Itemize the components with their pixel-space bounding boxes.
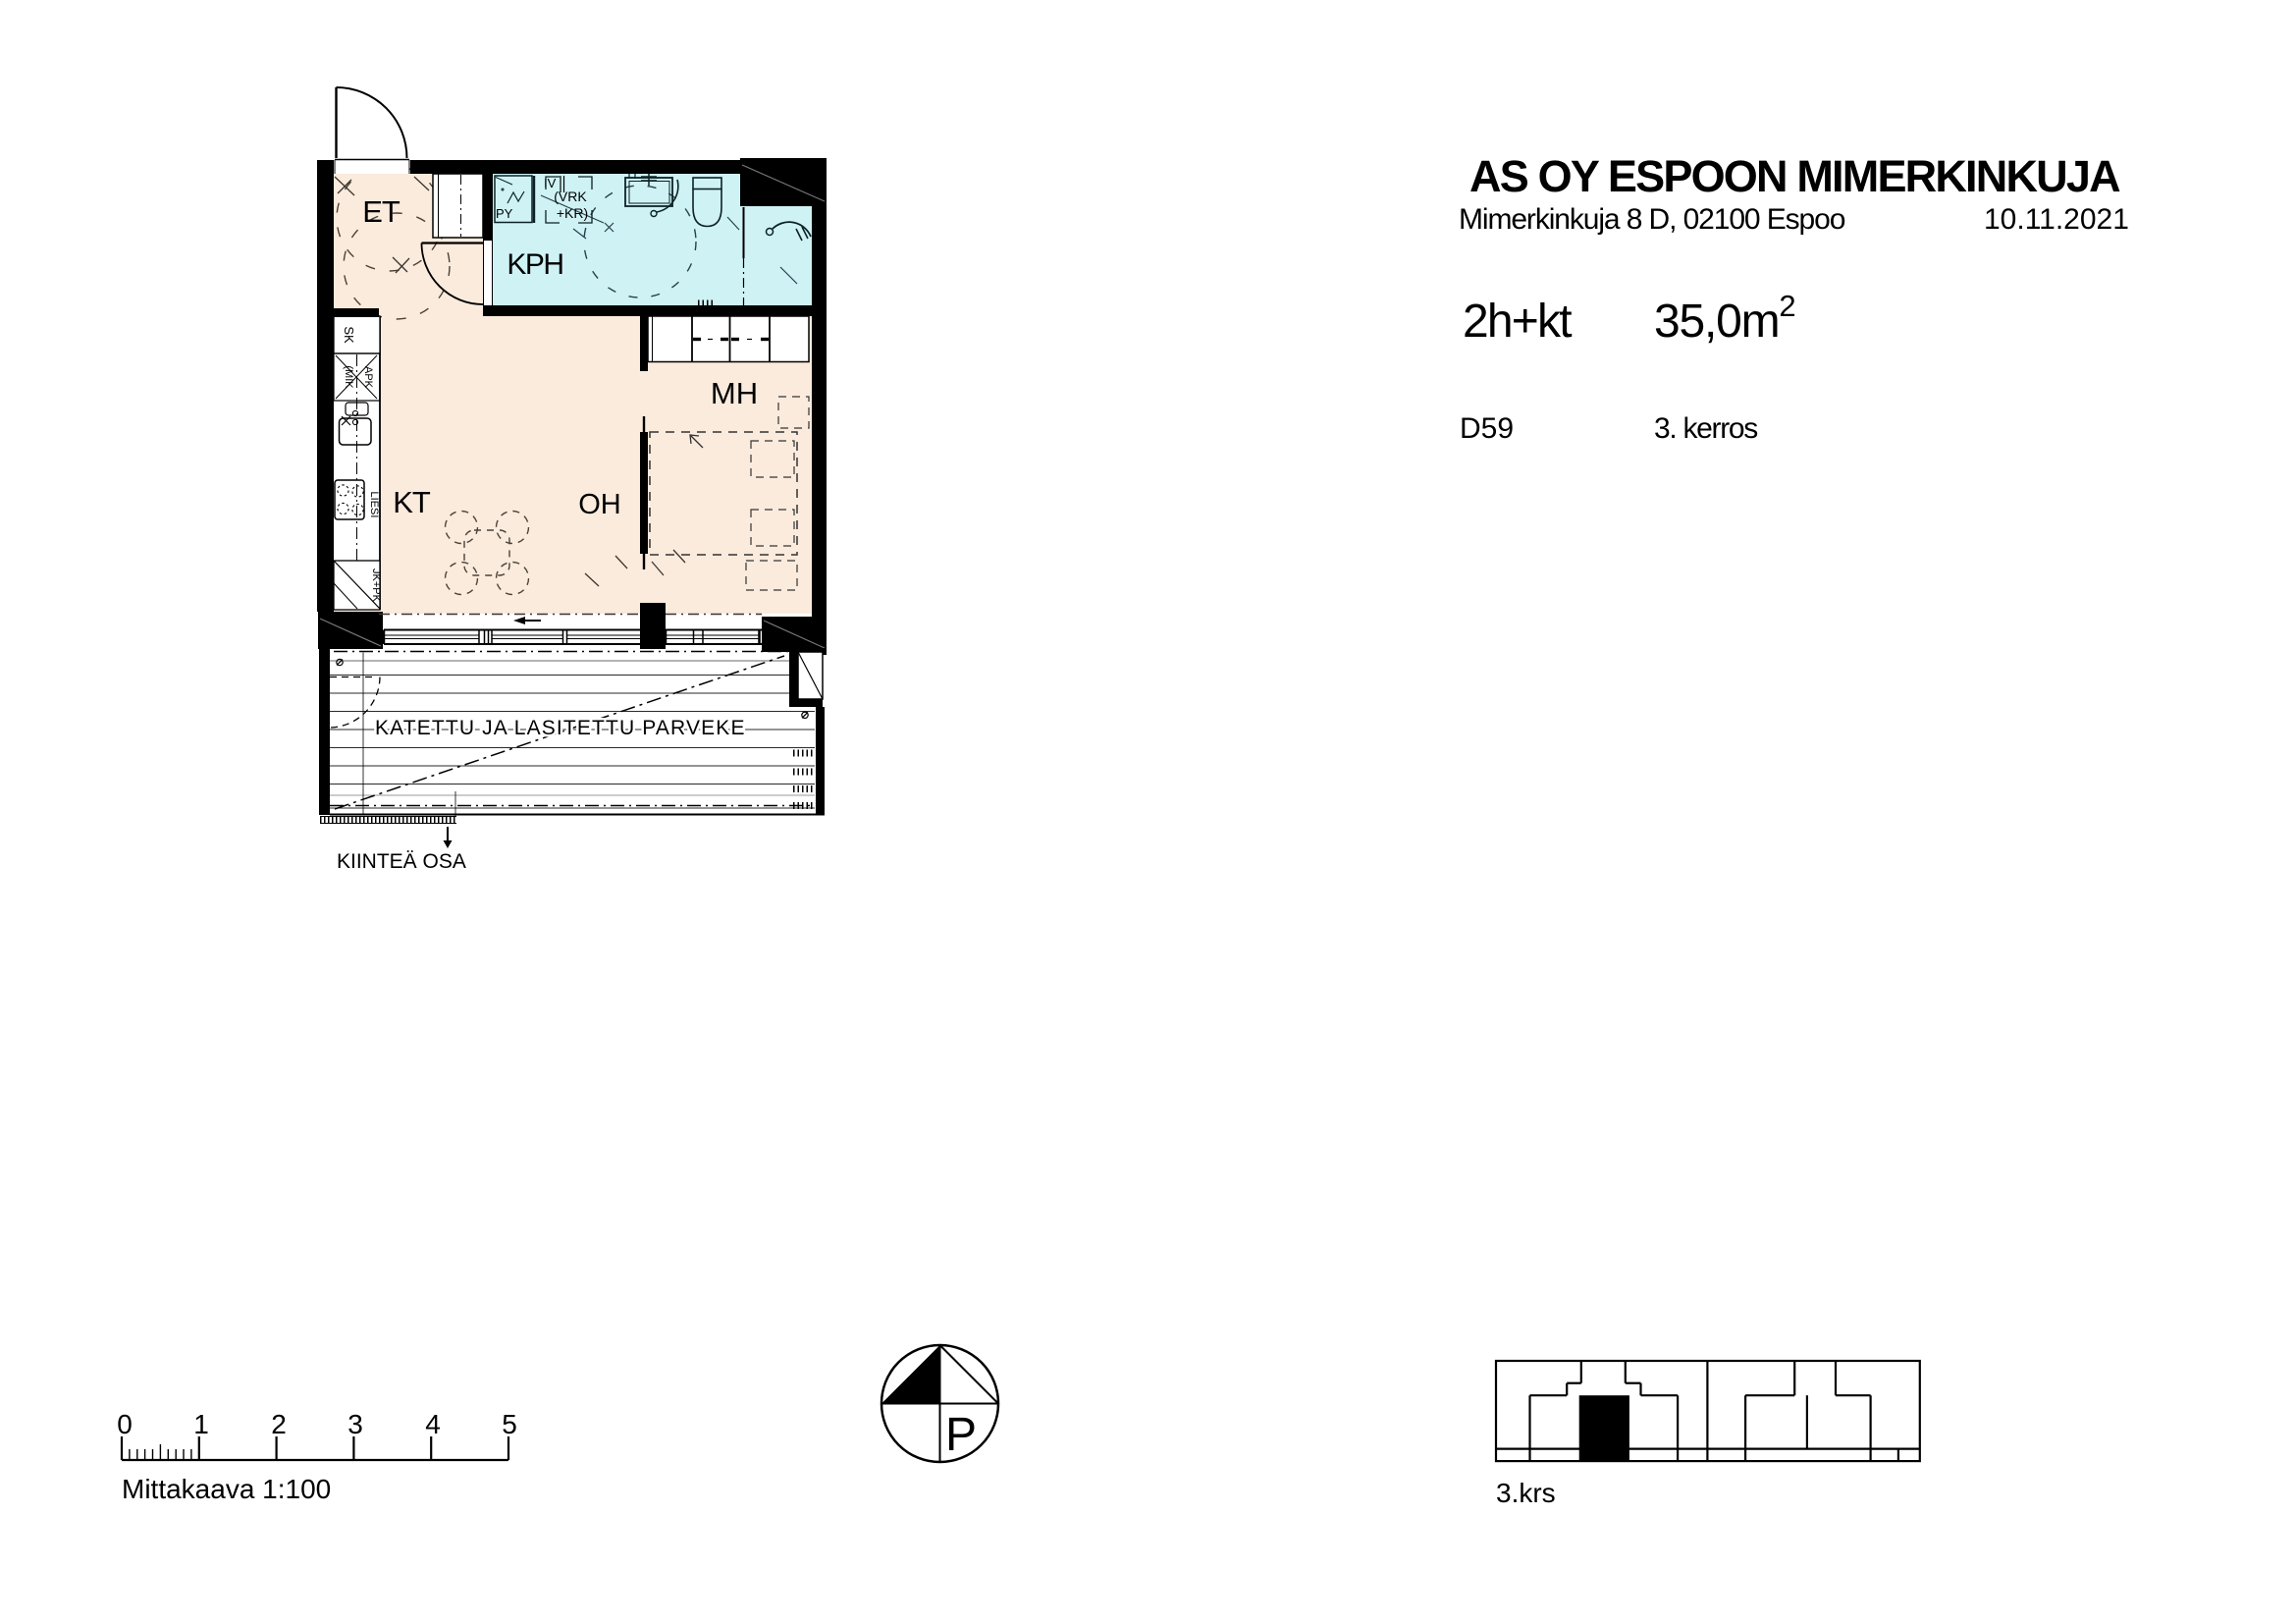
- svg-text:PY: PY: [496, 206, 513, 221]
- svg-text:10.11.2021: 10.11.2021: [1984, 203, 2129, 236]
- svg-text:SK: SK: [342, 326, 356, 344]
- svg-text:OH: OH: [578, 489, 621, 520]
- svg-text:0: 0: [117, 1409, 133, 1439]
- svg-text:3.krs: 3.krs: [1496, 1478, 1556, 1508]
- svg-text:+KR): +KR): [557, 205, 588, 221]
- svg-text:KATETTU JA LASITETTU PARVEKE: KATETTU JA LASITETTU PARVEKE: [375, 717, 746, 739]
- svg-text:KIINTEÄ OSA: KIINTEÄ OSA: [337, 850, 466, 873]
- svg-text:APK: APK: [362, 366, 374, 389]
- svg-text:JK+PK: JK+PK: [370, 568, 382, 603]
- svg-text:Mittakaava 1:100: Mittakaava 1:100: [122, 1474, 331, 1504]
- svg-text:2: 2: [271, 1409, 287, 1439]
- svg-text:P: P: [945, 1409, 977, 1461]
- svg-text:AS OY ESPOON MIMERKINKUJA: AS OY ESPOON MIMERKINKUJA: [1469, 151, 2120, 201]
- svg-text:3: 3: [347, 1409, 363, 1439]
- svg-text:ET: ET: [362, 194, 400, 229]
- svg-text:KPH: KPH: [507, 248, 562, 281]
- svg-text:2h+kt: 2h+kt: [1463, 296, 1572, 348]
- svg-text:MH: MH: [711, 376, 758, 410]
- svg-text:5: 5: [502, 1409, 517, 1439]
- svg-text:3. kerros: 3. kerros: [1654, 412, 1757, 445]
- svg-text:(MIK: (MIK: [343, 365, 354, 389]
- svg-text:LIESI: LIESI: [368, 492, 380, 518]
- svg-text:KT: KT: [393, 485, 431, 519]
- svg-text:(VRK: (VRK: [554, 189, 587, 204]
- svg-text:4: 4: [425, 1409, 441, 1439]
- svg-text:35,0m2: 35,0m2: [1654, 289, 1794, 348]
- svg-text:Mimerkinkuja 8 D, 02100 Espoo: Mimerkinkuja 8 D, 02100 Espoo: [1459, 203, 1845, 236]
- svg-text:D59: D59: [1460, 412, 1514, 445]
- svg-text:1: 1: [193, 1409, 209, 1439]
